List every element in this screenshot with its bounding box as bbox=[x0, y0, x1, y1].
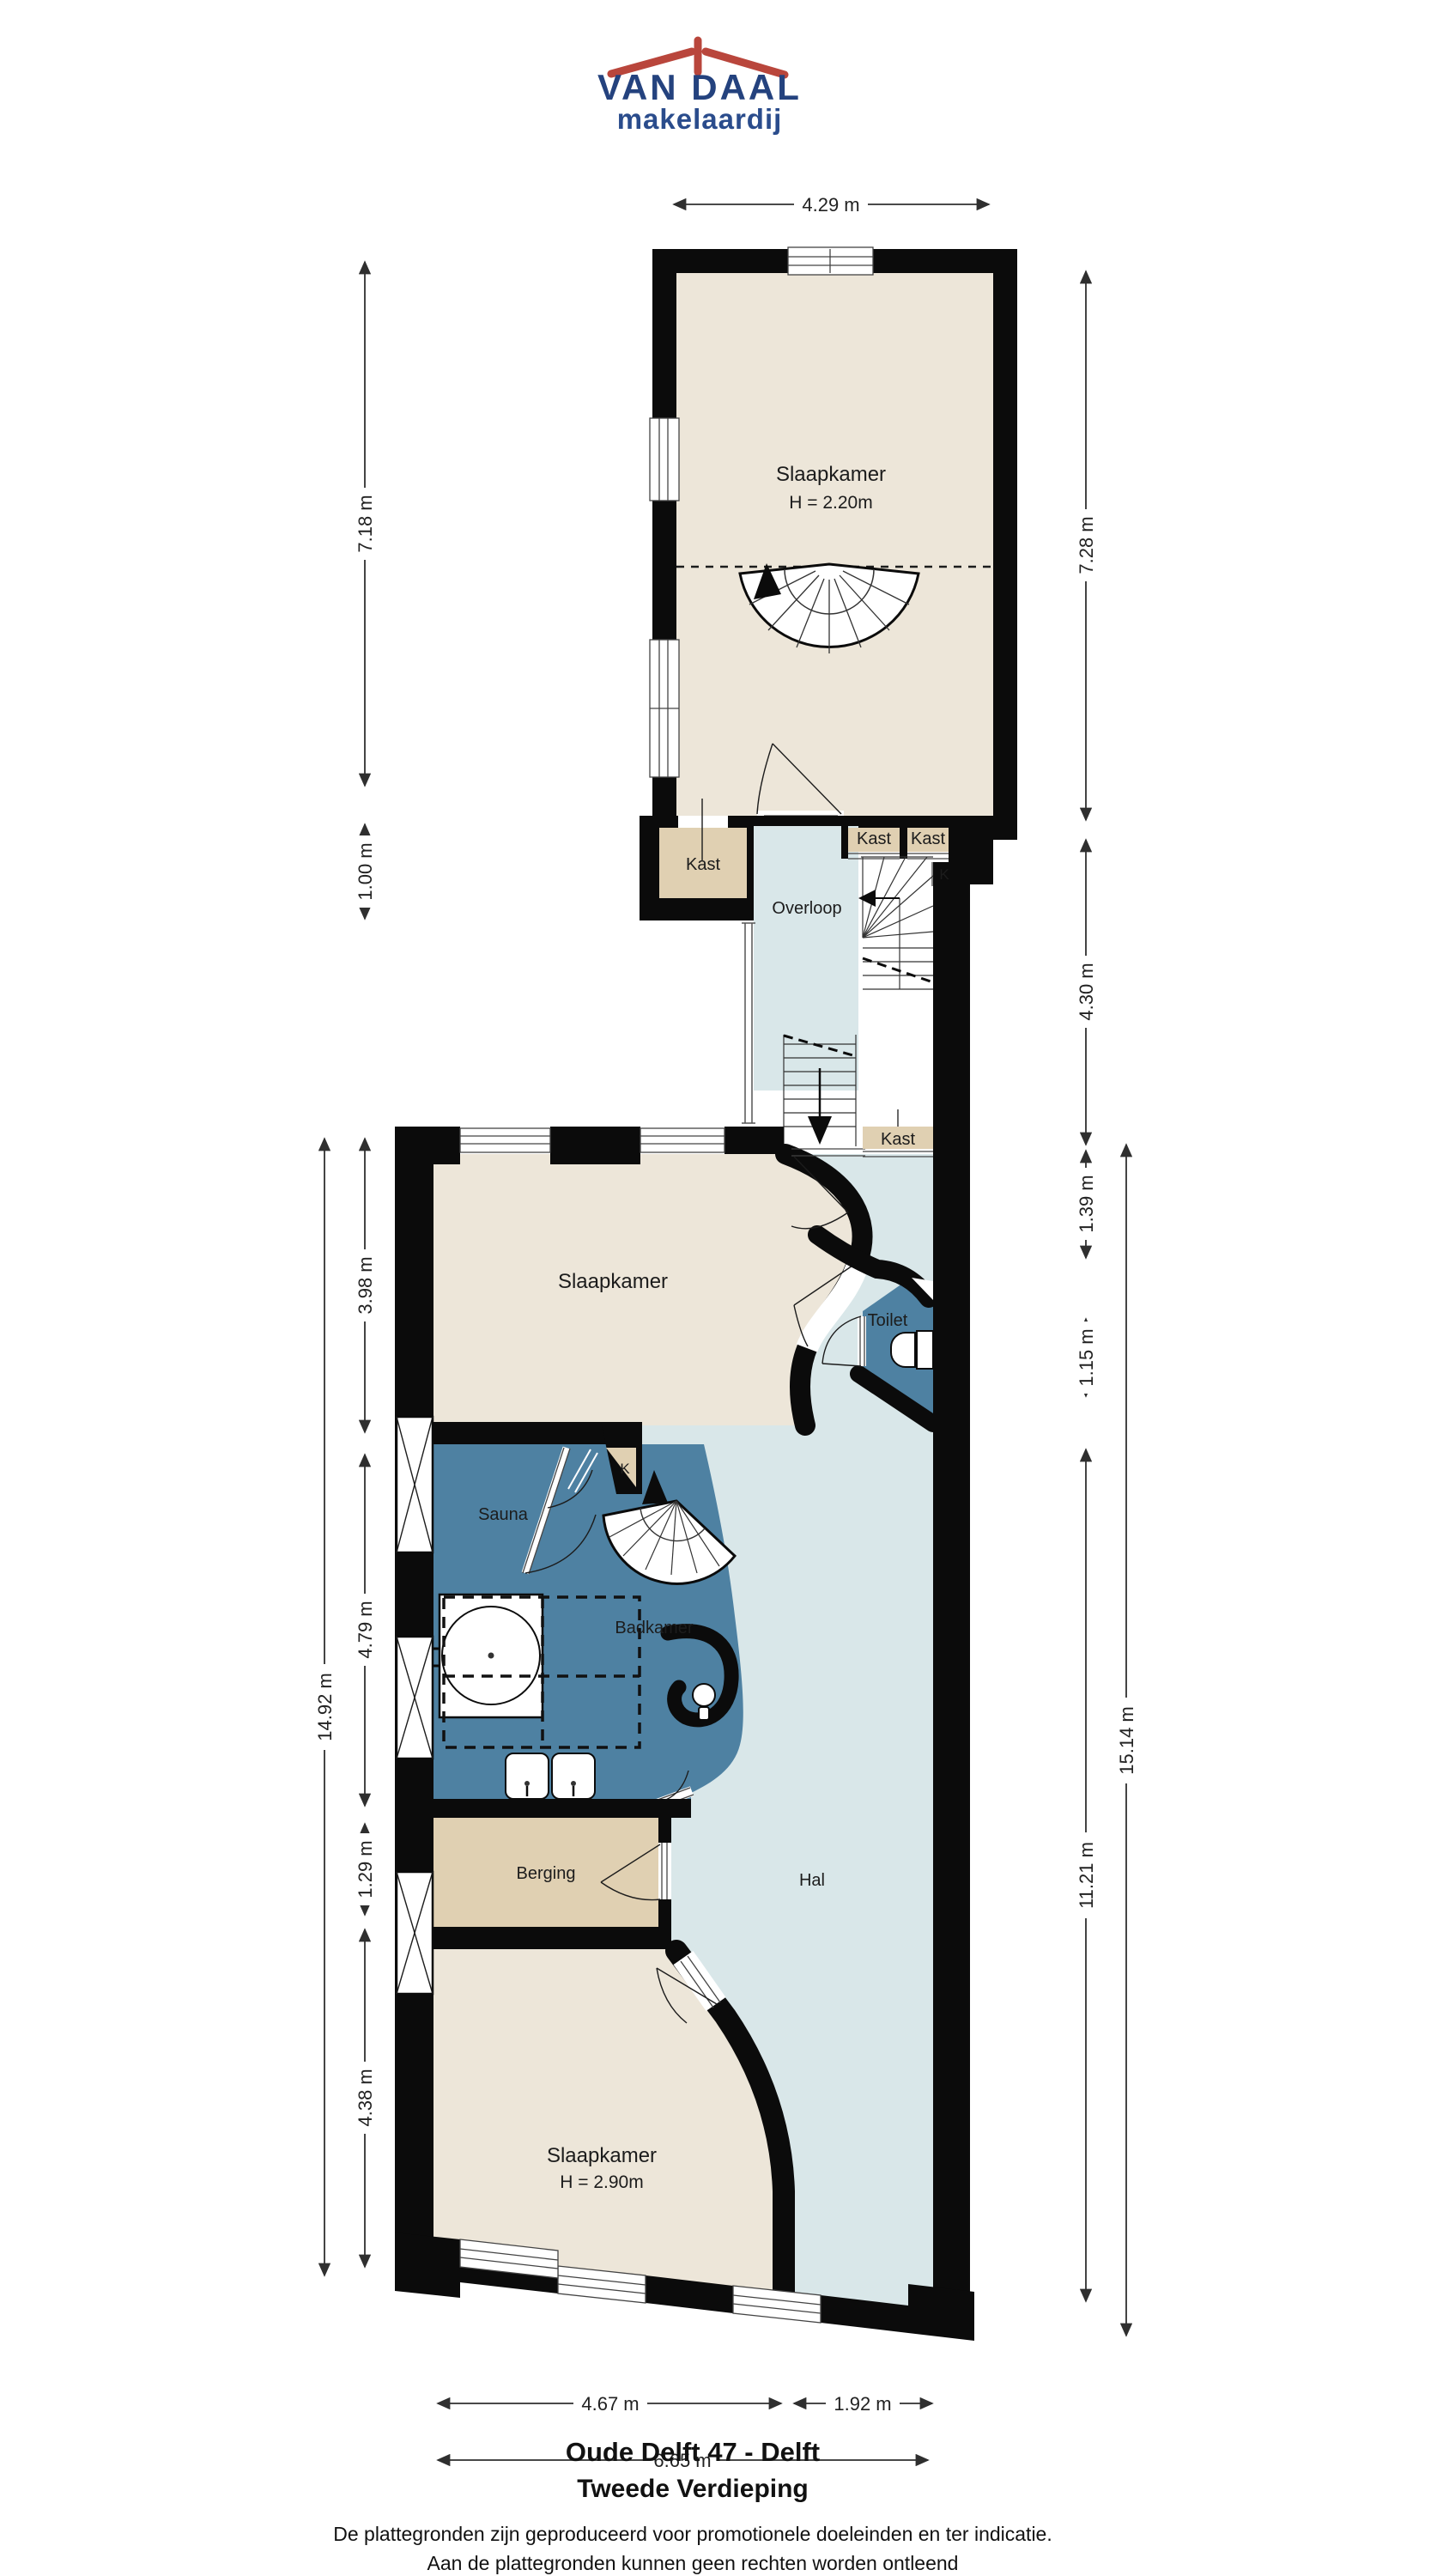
dimension-label: 1.00 m bbox=[355, 842, 376, 900]
dimension-label: 1.15 m bbox=[1076, 1328, 1097, 1386]
floorplan-drawing: VAN DAAL makelaardij bbox=[0, 0, 1449, 2576]
disclaimer-line2: Aan de plattegronden kunnen geen rechten… bbox=[0, 2552, 1385, 2575]
page-title: Oude Delft 47 - Delft bbox=[0, 2437, 1385, 2468]
room-label-kast-left: Kast bbox=[686, 855, 720, 874]
balustrade bbox=[742, 923, 755, 1123]
room-label-toilet: Toilet bbox=[868, 1311, 908, 1330]
overloop-floor bbox=[754, 826, 858, 1091]
room-label-slaapkamer-mid: Slaapkamer bbox=[558, 1270, 668, 1293]
room-label-badkamer: Badkamer bbox=[615, 1619, 693, 1637]
logo-name: VAN DAAL bbox=[597, 67, 802, 107]
toilet-fixture-icon bbox=[891, 1331, 933, 1369]
dimension-label: 1.39 m bbox=[1076, 1175, 1097, 1232]
dimension-label: 11.21 m bbox=[1076, 1842, 1097, 1909]
sink-icon bbox=[506, 1753, 549, 1799]
room-label-berging: Berging bbox=[517, 1864, 576, 1883]
dimension-label: 1.29 m bbox=[355, 1840, 376, 1898]
window bbox=[650, 640, 679, 777]
window bbox=[460, 1128, 550, 1152]
room-label-slaapkamer-top: Slaapkamer bbox=[776, 463, 886, 486]
stairs-direction-arrow bbox=[858, 890, 876, 907]
logo-tagline: makelaardij bbox=[617, 103, 783, 135]
window bbox=[640, 1128, 724, 1152]
upper-plan: Slaapkamer H = 2.20m bbox=[650, 247, 1017, 829]
upper-bedroom-floor bbox=[676, 273, 993, 816]
dimension-label: 14.92 m bbox=[314, 1673, 336, 1741]
window bbox=[397, 1417, 433, 1552]
dimension-label: 3.98 m bbox=[355, 1256, 376, 1314]
dimension-label: 4.38 m bbox=[355, 2069, 376, 2126]
right-wall bbox=[933, 1016, 970, 2297]
window bbox=[397, 1637, 433, 1759]
room-label-kast-right: Kast bbox=[911, 829, 945, 848]
lower-plan: Slaapkamer Toilet K Sauna Badkamer Bergi… bbox=[395, 1016, 974, 2341]
page-subtitle: Tweede Verdieping bbox=[0, 2475, 1385, 2504]
disclaimer-line1: De plattegronden zijn geproduceerd voor … bbox=[0, 2523, 1385, 2546]
dimension-label: 4.30 m bbox=[1076, 963, 1097, 1020]
room-label-overloop: Overloop bbox=[772, 899, 841, 918]
window bbox=[788, 247, 873, 275]
window bbox=[397, 1872, 433, 1994]
room-label-kast-stairs: Kast bbox=[881, 1130, 915, 1149]
stairs-direction-arrow bbox=[808, 1116, 832, 1145]
bathtub-icon bbox=[429, 1595, 543, 1717]
dimension-label: 15.14 m bbox=[1116, 1706, 1137, 1775]
dimension-label: 7.18 m bbox=[355, 495, 376, 552]
room-label-kast-mid: Kast bbox=[857, 829, 891, 848]
dimension-label: 4.67 m bbox=[581, 2393, 639, 2415]
room-height-slaapkamer-bottom: H = 2.90m bbox=[560, 2172, 643, 2192]
dimension-top-label: 4.29 m bbox=[802, 194, 859, 216]
room-label-k-top: K bbox=[939, 866, 949, 883]
dimension-label: 1.92 m bbox=[834, 2393, 891, 2415]
floorplan-page: VAN DAAL makelaardij bbox=[0, 0, 1449, 2576]
room-label-k-small: K bbox=[620, 1461, 630, 1477]
stairs-winder-icon bbox=[858, 857, 933, 989]
dimension-label: 4.79 m bbox=[355, 1601, 376, 1658]
room-height-slaapkamer-top: H = 2.20m bbox=[789, 493, 872, 513]
room-label-hal: Hal bbox=[799, 1871, 825, 1890]
sink-icon bbox=[552, 1753, 595, 1799]
van-daal-logo: VAN DAAL makelaardij bbox=[597, 40, 802, 135]
dimension-label: 7.28 m bbox=[1076, 516, 1097, 574]
room-label-sauna: Sauna bbox=[478, 1505, 529, 1524]
room-label-slaapkamer-bottom: Slaapkamer bbox=[547, 2144, 657, 2167]
window bbox=[650, 418, 679, 501]
